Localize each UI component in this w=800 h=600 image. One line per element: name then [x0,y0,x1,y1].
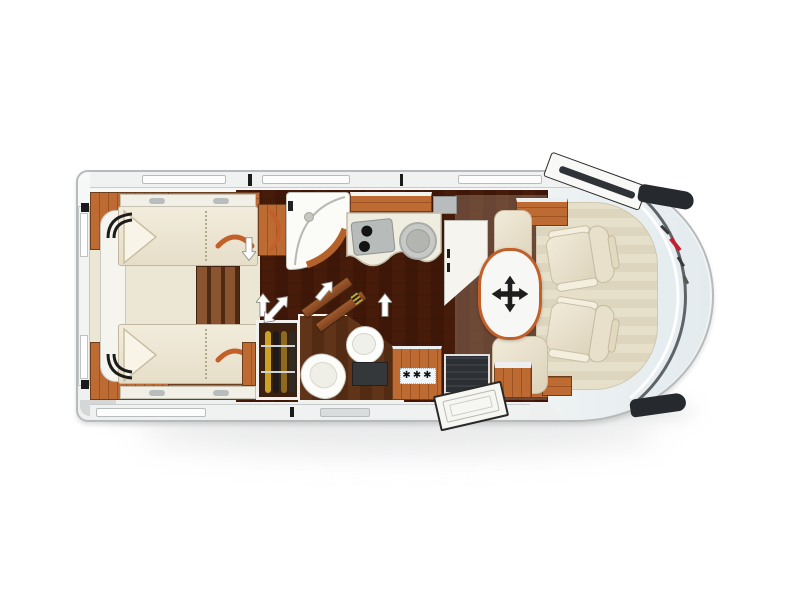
washroom-counter [352,362,388,386]
brand-emblem [660,225,689,285]
rear-wall [78,206,90,386]
swivel-seat-passenger [544,221,623,293]
shower-cubicle [286,192,350,270]
single-bed-right [118,324,258,384]
windshield-arc [628,186,716,408]
hanging-clothes [289,331,295,393]
cooker-hob [350,218,395,256]
toilet [346,326,384,364]
rear-lamp [81,380,89,389]
cabinet-handle [447,249,450,258]
hanging-clothes [281,331,287,393]
overhead-shelf [120,194,256,207]
freezer-rating-icon: ✱✱✱ [400,368,436,384]
wall-post [400,174,403,186]
corner-trim-icon [106,210,136,240]
move-table-icon [488,272,532,316]
mattress-seam [205,211,207,261]
wall-post [290,407,294,417]
window [96,408,206,417]
clothes-wardrobe [256,320,300,400]
corner-trim-icon [106,352,136,382]
sink-bowl [406,229,430,253]
movable-table [478,248,542,340]
window [142,175,226,184]
mattress-seam [205,329,207,379]
wardrobe-rail [261,345,295,347]
reading-light [213,198,229,204]
reading-light [149,390,165,396]
motorhome-floorplan: ✱✱✱ [0,0,800,600]
hanging-clothes [273,331,279,393]
reading-light [149,198,165,204]
cabinet-handle [447,263,450,272]
burner [361,225,373,237]
rear-window [80,335,88,379]
kitchen-overhead-locker [350,192,432,212]
rear-window [80,213,88,257]
sidewall-top [90,172,610,188]
wall-post [248,174,252,186]
wardrobe-rail [261,371,295,373]
window [458,175,542,184]
toilet-lid [352,333,376,355]
single-bed-left [118,206,258,266]
basin-bowl [305,357,342,393]
shower-glass-curve [287,193,351,271]
reading-light [213,390,229,396]
overhead-shelf [120,386,256,399]
fridge-freezer: ✱✱✱ [392,346,442,400]
hanging-clothes [265,331,271,393]
service-hatch [320,408,370,417]
window [262,175,350,184]
rear-lamp [81,203,89,212]
bedside-cabinet [242,342,256,386]
burner [358,240,370,252]
kitchen-sink [399,222,437,260]
swivel-seat-driver [544,295,623,367]
